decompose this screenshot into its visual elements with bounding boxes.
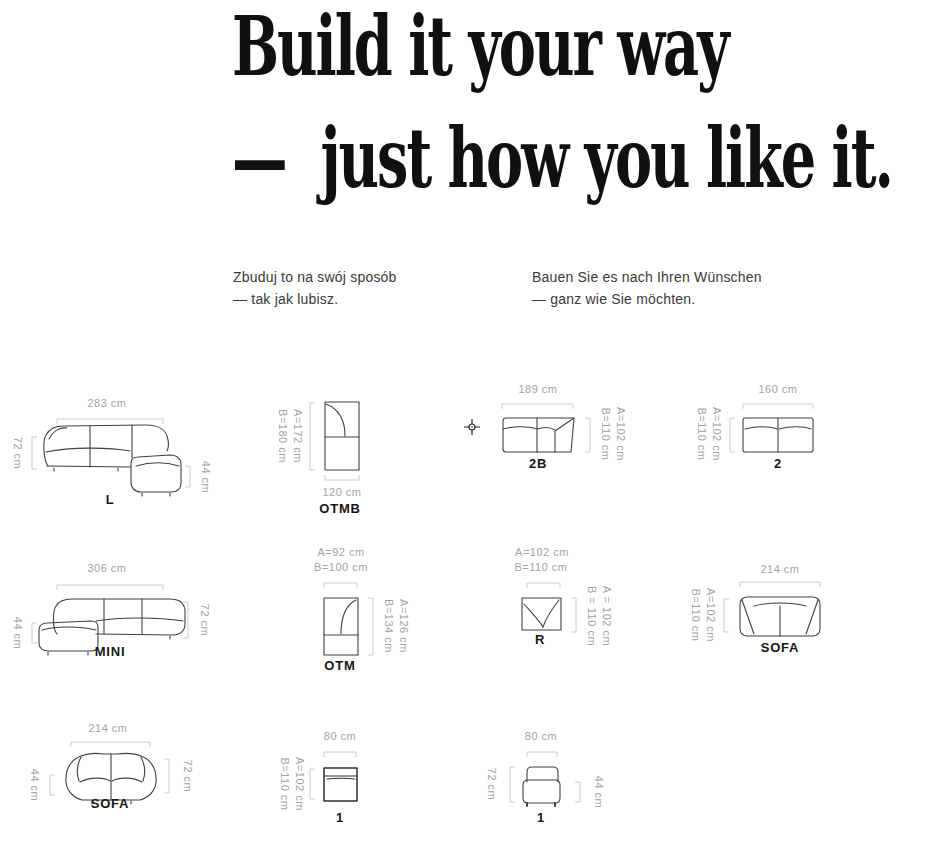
otmb-width-dimension: 120 cm — [322, 486, 361, 498]
sofa-top-side-dimension: A=102 cm B=110 cm — [688, 588, 718, 642]
one-top-side-dimension: A=102 cm B=110 cm — [277, 757, 307, 811]
sofa-top-module-label: SOFA — [761, 640, 800, 655]
sofa-top-view-drawing — [740, 597, 820, 636]
one-top-module-label: 1 — [336, 810, 344, 825]
otm-side-dimension-a: A=126 cm — [396, 599, 411, 653]
diagram-line-art — [0, 0, 943, 846]
two-b-side-dimension-a: A=102 cm — [613, 407, 628, 461]
one-front-width-dimension: 80 cm — [525, 730, 557, 742]
two-side-dimension: A=102 cm B=110 cm — [694, 407, 724, 461]
otm-side-dimension-b: B=134 cm — [381, 599, 396, 653]
mini-module-label: MINI — [95, 644, 126, 659]
one-top-side-dimension-a: A=102 cm — [292, 757, 307, 811]
two-b-module-label: 2B — [529, 456, 547, 471]
r-top-dimension-a: A=102 cm — [515, 546, 569, 558]
r-module-drawing — [522, 598, 561, 630]
r-side-dimension-b: B = 110 cm — [584, 586, 599, 646]
otm-top-dimension-a: A=92 cm — [317, 546, 364, 558]
sofa-top-side-dimension-b: B=110 cm — [688, 588, 703, 642]
sofa-front-module-label: SOFA — [91, 796, 130, 811]
two-b-module-drawing — [503, 418, 574, 452]
r-side-dimension: A = 102 cm B = 110 cm — [584, 586, 614, 646]
one-front-module-label: 1 — [537, 810, 545, 825]
two-b-width-dimension: 189 cm — [518, 383, 557, 395]
two-module-drawing — [743, 418, 813, 452]
mini-width-dimension: 306 cm — [87, 562, 126, 574]
otmb-side-dimension-b: B=180 cm — [275, 409, 290, 463]
sofa-top-width-dimension: 214 cm — [760, 563, 799, 575]
two-b-side-dimension-b: B=110 cm — [598, 407, 613, 461]
otmb-side-dimension: A=172 cm B=180 cm — [275, 409, 305, 463]
sofa-front-seat-height-dimension: 44 cm — [27, 769, 42, 801]
l-seat-height-dimension: 44 cm — [198, 461, 213, 493]
mini-height-dimension: 72 cm — [197, 604, 212, 636]
otm-top-dimension-b: B=100 cm — [314, 561, 368, 573]
two-b-side-dimension: A=102 cm B=110 cm — [598, 407, 628, 461]
r-module-label: R — [535, 632, 545, 647]
otmb-side-dimension-a: A=172 cm — [290, 409, 305, 463]
r-top-dimension-b: B=110 cm — [514, 561, 567, 573]
otm-module-label: OTM — [324, 658, 355, 673]
one-front-view-drawing — [523, 767, 560, 806]
otm-module-drawing — [324, 598, 358, 655]
l-width-dimension: 283 cm — [87, 397, 126, 409]
otmb-module-label: OTMB — [319, 501, 360, 516]
two-side-dimension-b: B=110 cm — [694, 407, 709, 461]
sofa-top-side-dimension-a: A=102 cm — [703, 588, 718, 642]
otmb-module-drawing — [325, 402, 359, 470]
two-width-dimension: 160 cm — [758, 383, 797, 395]
l-module-label: L — [106, 492, 115, 507]
l-height-dimension: 72 cm — [10, 437, 25, 469]
one-front-height-dimension: 72 cm — [484, 768, 499, 800]
one-top-view-drawing — [324, 768, 357, 801]
l-sofa-drawing — [44, 425, 181, 496]
one-front-seat-height-dimension: 44 cm — [591, 776, 606, 808]
otm-side-dimension: A=126 cm B=134 cm — [381, 599, 411, 653]
cursor-icon — [464, 419, 480, 435]
sofa-front-width-dimension: 214 cm — [88, 722, 127, 734]
one-top-side-dimension-b: B=110 cm — [277, 757, 292, 811]
r-side-dimension-a: A = 102 cm — [599, 586, 614, 646]
one-top-width-dimension: 80 cm — [324, 730, 356, 742]
sofa-front-height-dimension: 72 cm — [180, 760, 195, 792]
mini-seat-height-dimension: 44 cm — [10, 617, 25, 649]
two-side-dimension-a: A=102 cm — [709, 407, 724, 461]
page: { "heading": { "line1": "Build it your w… — [0, 0, 943, 846]
two-module-label: 2 — [774, 456, 782, 471]
